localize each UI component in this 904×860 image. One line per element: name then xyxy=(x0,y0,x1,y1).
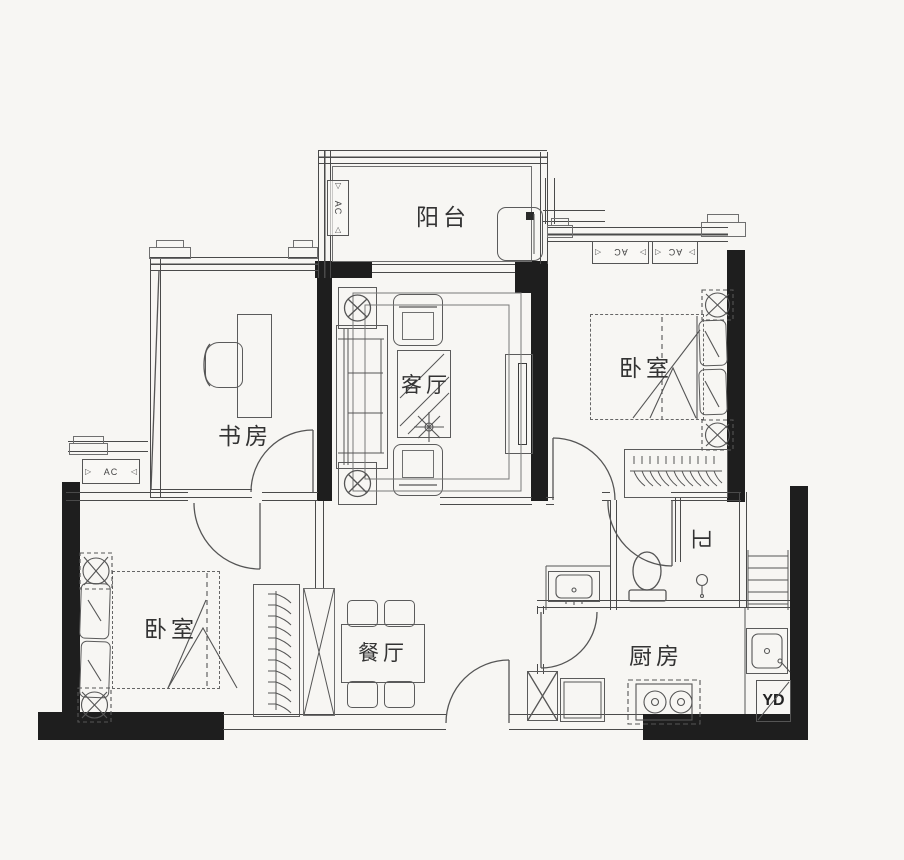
armchair-seat xyxy=(402,450,434,478)
bathroom-partition xyxy=(675,498,681,562)
room-label-study: 书房 xyxy=(218,417,272,451)
door-bathroom xyxy=(608,500,672,566)
room-label-living: 客厅 xyxy=(401,369,451,399)
tv-screen xyxy=(518,363,527,445)
ac-arrow-icon: ▷ xyxy=(334,183,342,189)
ac-arrow-icon: ◁ xyxy=(131,468,137,476)
wall-segment xyxy=(38,712,224,740)
bathroom-top-wall xyxy=(602,492,610,501)
floor-plan-canvas: YD xyxy=(0,0,904,860)
washing-machine-latch xyxy=(526,212,534,220)
room-label-bedroom-right: 卧室 xyxy=(619,349,673,383)
kitchen-left-wall xyxy=(537,606,544,614)
balcony-sliding-door xyxy=(372,264,515,273)
ac-arrow-icon: ▷ xyxy=(640,249,646,257)
bedroom-left-top-wall xyxy=(66,492,188,501)
ac-arrow-icon: ◁ xyxy=(655,249,661,257)
fridge xyxy=(560,678,605,722)
desk-chair xyxy=(205,342,243,388)
pillar-cap xyxy=(156,240,184,248)
balcony-window-band xyxy=(318,150,547,164)
wall-segment xyxy=(317,261,332,501)
ac-label: AC xyxy=(613,248,628,258)
ac-unit-balcony: ▷ AC ◁ xyxy=(326,179,350,237)
pillow xyxy=(79,640,111,698)
pillar-cap xyxy=(701,222,746,237)
dining-chair xyxy=(384,681,415,708)
ac-label: AC xyxy=(668,248,683,258)
wall-segment xyxy=(727,250,745,502)
wall-segment xyxy=(790,486,808,740)
bathroom-left-wall xyxy=(610,500,617,610)
wall-stub xyxy=(546,497,554,505)
toilet-icon xyxy=(629,552,666,601)
pillar-cap xyxy=(288,247,318,259)
wardrobe xyxy=(253,584,300,717)
side-table-lamp xyxy=(338,287,377,329)
ac-unit-bedroom-right: ▷ AC ◁ xyxy=(592,241,649,264)
wall-segment xyxy=(531,261,548,501)
kitchen-sink xyxy=(746,628,788,674)
room-label-dining: 餐厅 xyxy=(358,637,408,667)
tall-cabinet xyxy=(303,588,335,716)
duct-shaft xyxy=(527,671,558,721)
pillar-cap xyxy=(149,247,191,259)
living-bottom-wall xyxy=(440,497,532,505)
dining-chair xyxy=(384,600,415,627)
study-window-band xyxy=(150,257,318,271)
vanity-sink xyxy=(548,571,600,602)
bedroom-left-top-wall xyxy=(262,492,318,501)
study-left-wall xyxy=(150,257,161,497)
side-table-lamp xyxy=(338,462,377,505)
room-label-balcony: 阳台 xyxy=(416,198,470,232)
yd-label: YD xyxy=(762,692,784,710)
bathroom-right-wall xyxy=(739,492,747,608)
dining-chair xyxy=(347,681,378,708)
shower-icon xyxy=(697,575,708,598)
wall-stub xyxy=(315,501,324,589)
ac-arrow-icon: ▷ xyxy=(85,468,91,476)
yd-box: YD xyxy=(756,680,791,722)
ac-arrow-icon: ▷ xyxy=(689,249,695,257)
pillar-cap xyxy=(293,240,313,248)
ac-arrow-icon: ◁ xyxy=(334,227,342,233)
ac-unit-bedroom-right-2: ▷ AC ◁ xyxy=(652,241,698,264)
dining-chair xyxy=(347,600,378,627)
pillar-cap xyxy=(73,436,104,444)
room-label-bedroom-left: 卧室 xyxy=(144,610,198,644)
pillow xyxy=(79,582,111,639)
ac-arrow-icon: ◁ xyxy=(595,249,601,257)
door-bedroom-right xyxy=(553,438,615,500)
room-label-kitchen: 厨房 xyxy=(629,637,683,671)
pillar-cap xyxy=(551,218,569,226)
sofa xyxy=(336,325,388,469)
armchair-seat xyxy=(402,312,434,340)
door-kitchen xyxy=(541,612,597,668)
pillar-cap xyxy=(707,214,739,223)
ac-label: AC xyxy=(104,467,119,477)
ac-label: AC xyxy=(333,201,343,216)
pillar-cap xyxy=(69,443,108,455)
pillow xyxy=(698,369,728,416)
pillow xyxy=(698,320,728,367)
door-entry xyxy=(446,660,509,723)
ac-unit-bedroom-left: ▷ AC ◁ xyxy=(82,459,140,484)
door-bedroom-left xyxy=(194,503,260,569)
room-label-bathroom: 卫 xyxy=(687,529,717,550)
pillar-cap xyxy=(547,225,573,238)
wardrobe xyxy=(624,449,728,498)
washing-machine xyxy=(497,207,543,261)
wall-segment xyxy=(62,482,80,740)
